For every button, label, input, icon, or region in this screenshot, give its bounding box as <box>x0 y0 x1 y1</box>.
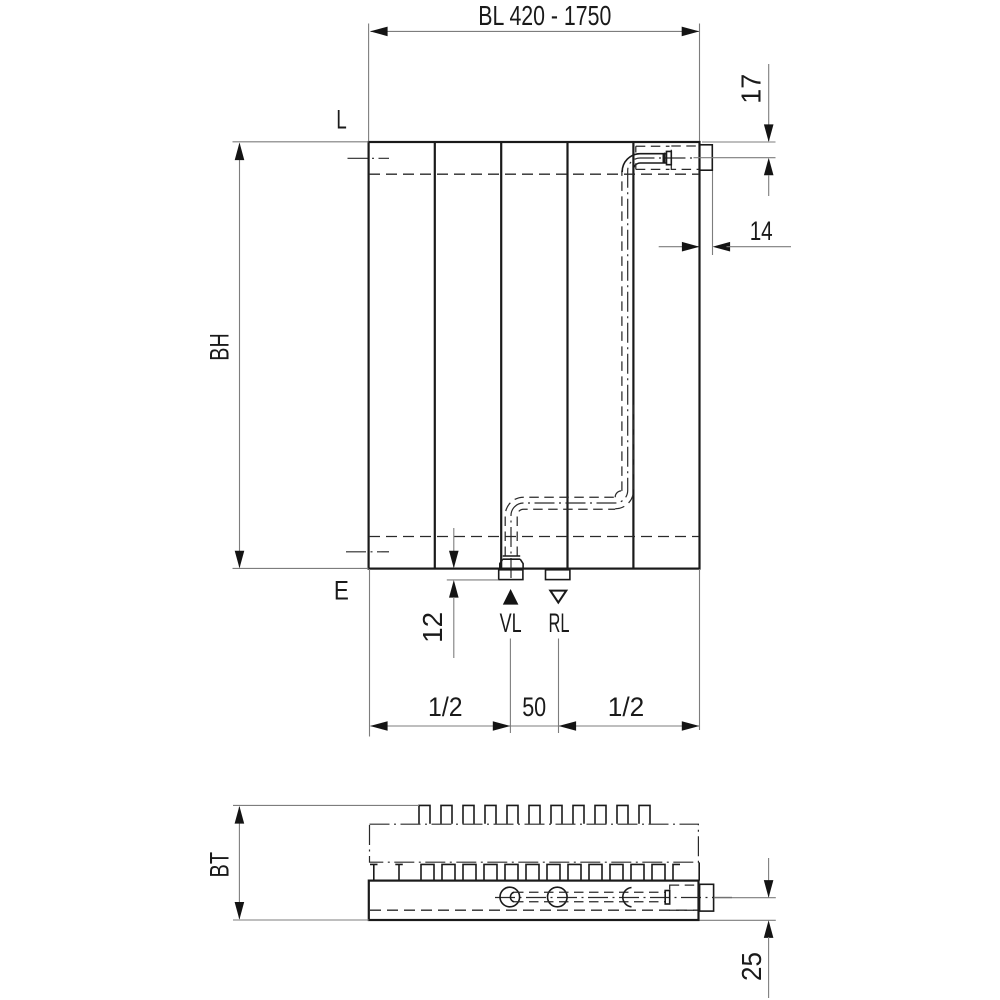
svg-text:50: 50 <box>522 692 546 722</box>
svg-text:17: 17 <box>735 74 766 104</box>
svg-text:25: 25 <box>736 952 767 981</box>
svg-text:BL 420 - 1750: BL 420 - 1750 <box>478 0 611 31</box>
svg-text:1/2: 1/2 <box>608 692 645 722</box>
svg-text:RL: RL <box>549 608 570 638</box>
svg-text:1/2: 1/2 <box>428 692 463 722</box>
svg-text:12: 12 <box>417 612 448 643</box>
svg-text:L: L <box>336 105 347 135</box>
svg-text:BH: BH <box>204 333 234 361</box>
svg-text:VL: VL <box>500 608 522 638</box>
svg-text:E: E <box>334 575 349 605</box>
svg-text:BT: BT <box>204 852 234 878</box>
svg-text:14: 14 <box>750 216 773 246</box>
